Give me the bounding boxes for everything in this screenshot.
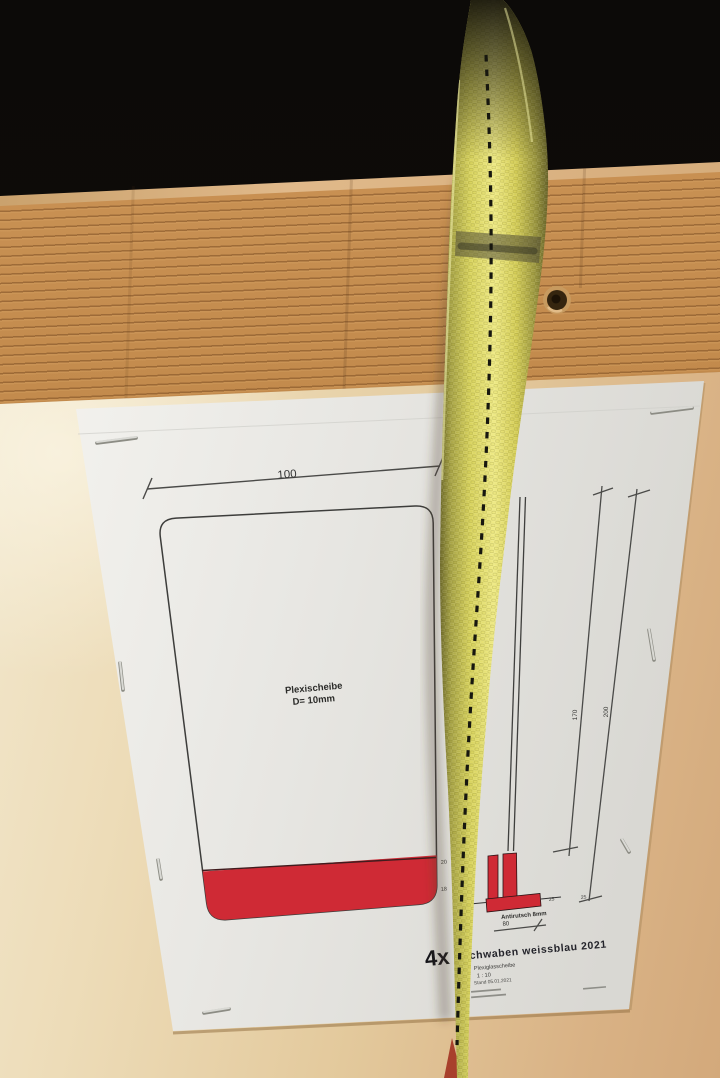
dimension-label-170: 170 [572, 709, 579, 720]
photo-scene: 100 Plexischeibe D= 10mm 170 [0, 0, 720, 1078]
svg-text:25: 25 [581, 895, 587, 901]
drill-hole [543, 286, 571, 314]
dimension-label-80: 80 [502, 921, 510, 928]
photo-overlay-svg: 100 Plexischeibe D= 10mm 170 [0, 0, 720, 1078]
part-label: Plexischeibe D= 10mm [285, 681, 343, 708]
strap-top-shadow [415, 0, 575, 170]
dimension-label-100: 100 [277, 468, 297, 481]
dimension-label-200: 200 [603, 706, 610, 717]
scale-text: 1 : 10 [477, 972, 491, 979]
